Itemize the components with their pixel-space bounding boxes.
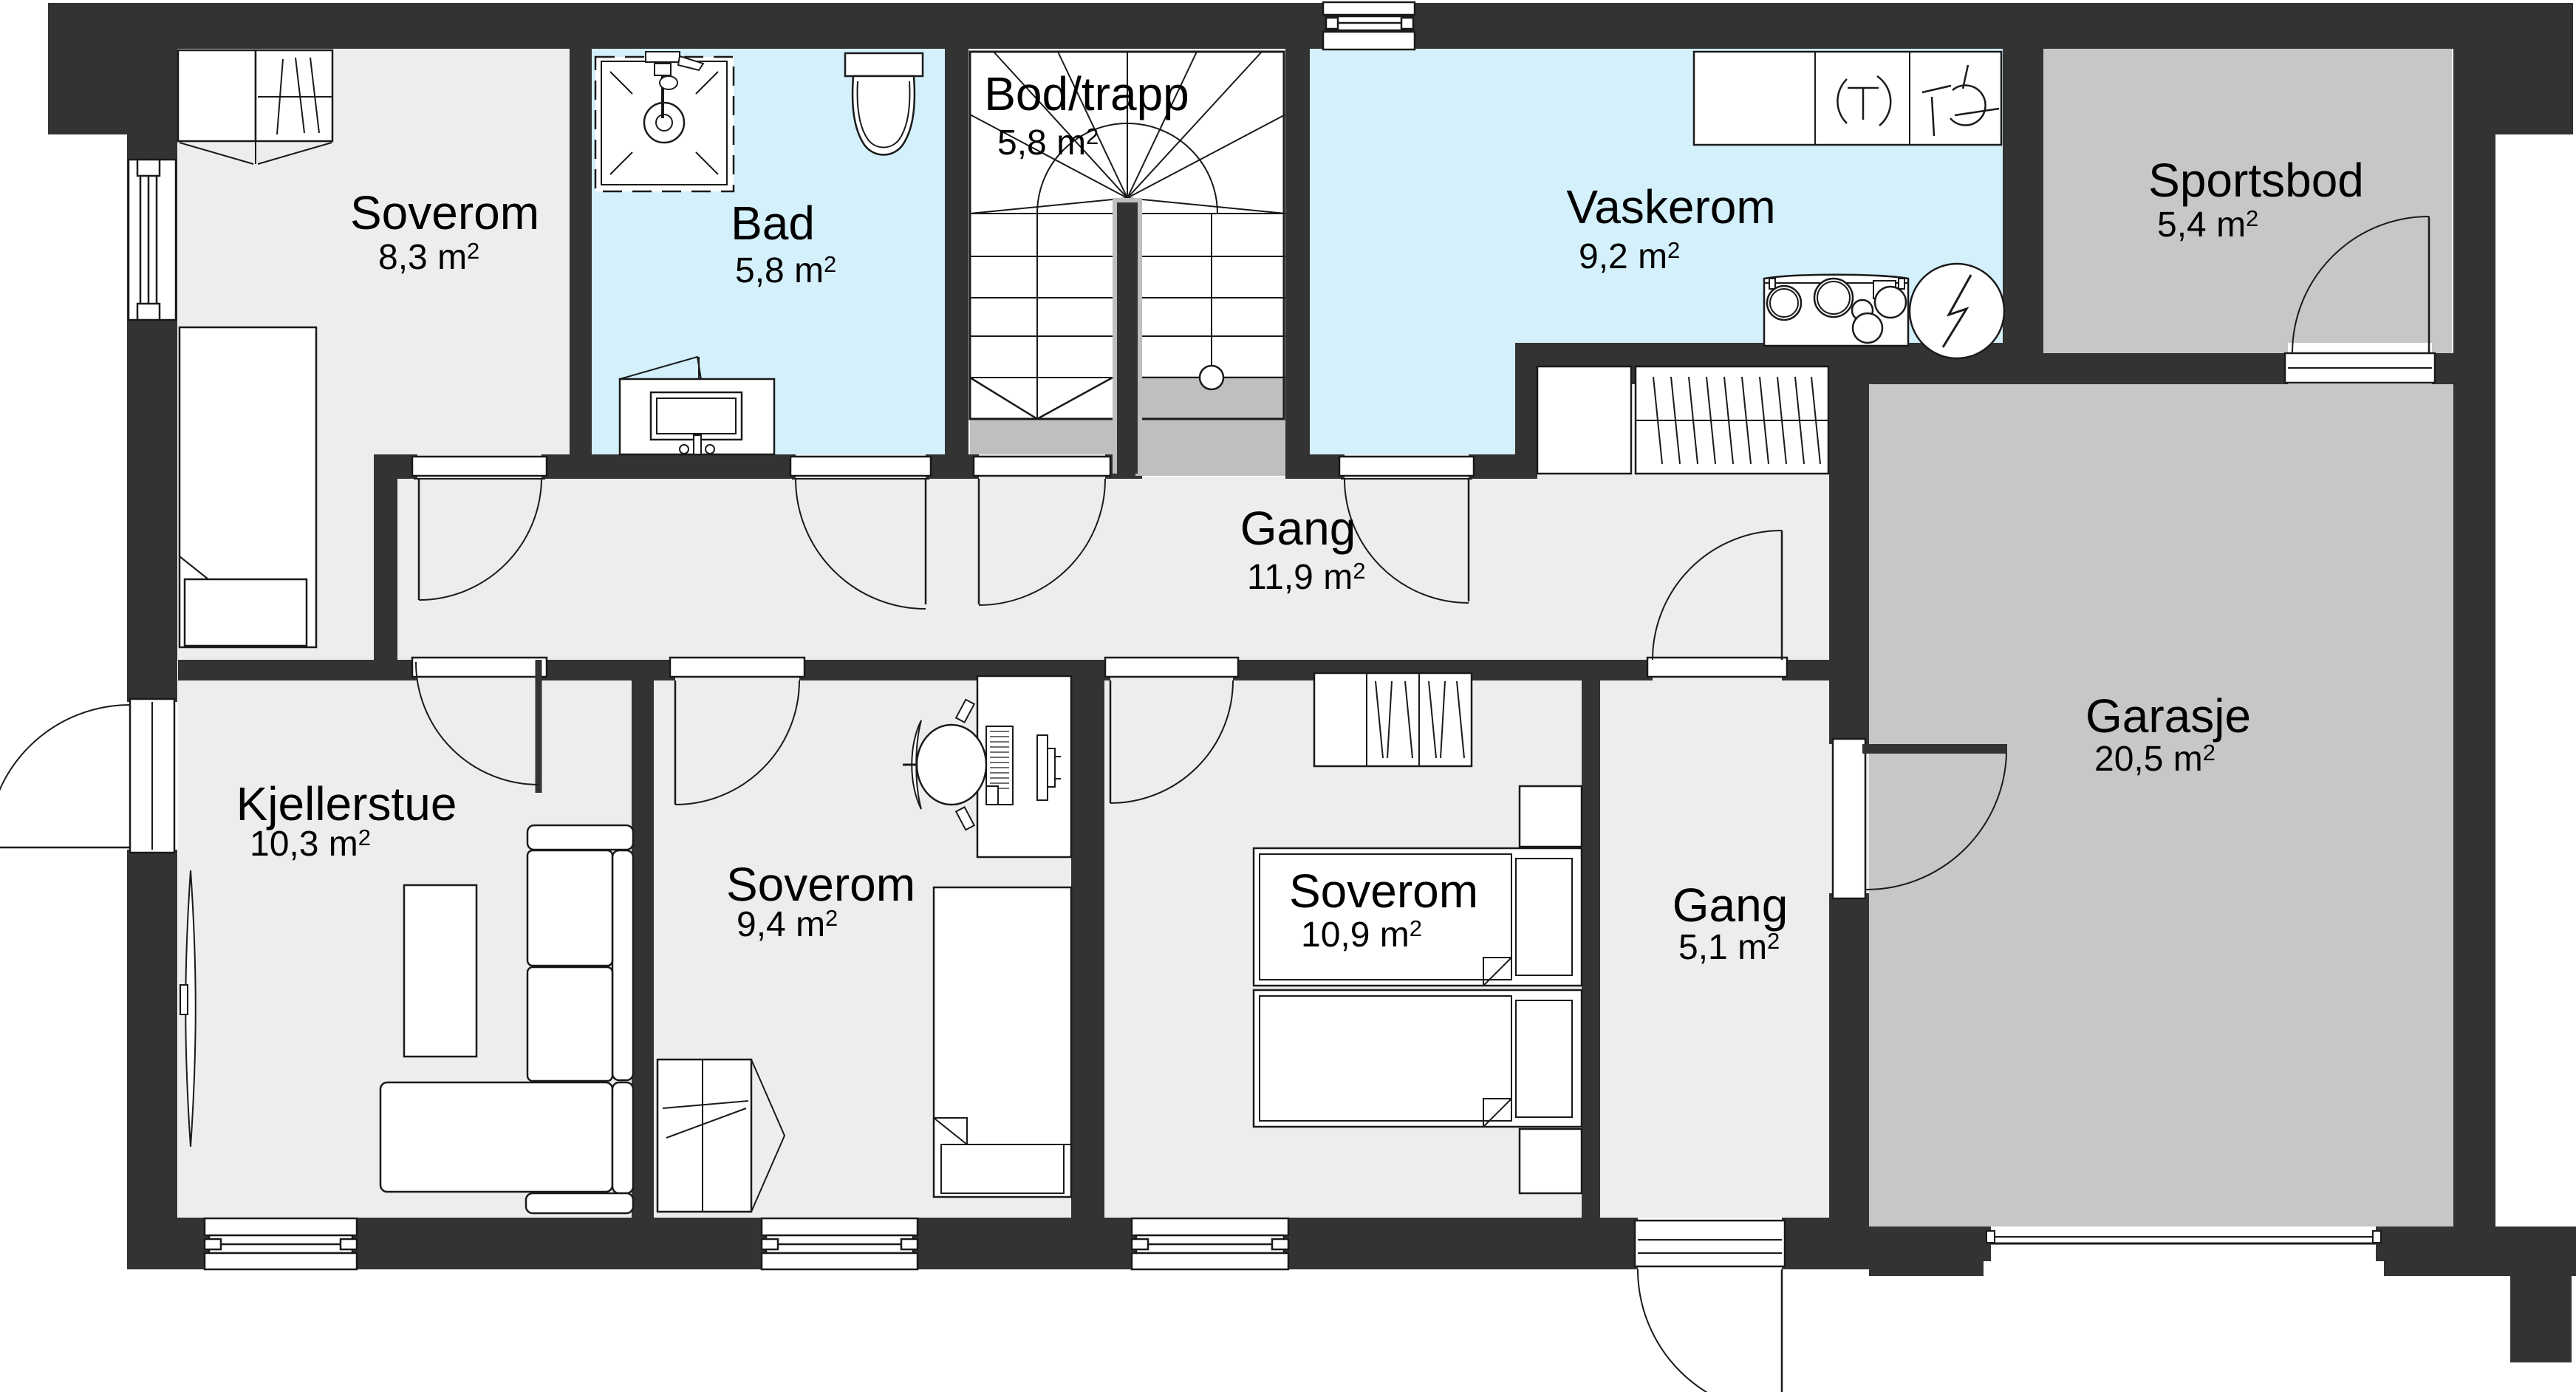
- svg-text:20,5 m2: 20,5 m2: [2094, 740, 2215, 779]
- svg-text:Bod/trapp: Bod/trapp: [984, 67, 1189, 120]
- svg-text:11,9 m2: 11,9 m2: [1247, 558, 1365, 597]
- svg-text:Gang: Gang: [1673, 878, 1788, 932]
- svg-text:5,8 m2: 5,8 m2: [735, 251, 836, 290]
- svg-text:5,8 m2: 5,8 m2: [997, 123, 1099, 163]
- svg-text:10,3 m2: 10,3 m2: [250, 825, 371, 864]
- svg-text:Bad: Bad: [731, 197, 815, 250]
- svg-text:Soverom: Soverom: [1289, 864, 1478, 918]
- svg-text:5,4 m2: 5,4 m2: [2157, 205, 2258, 245]
- svg-text:Vaskerom: Vaskerom: [1566, 180, 1775, 233]
- svg-text:Garasje: Garasje: [2085, 689, 2251, 743]
- svg-text:9,4 m2: 9,4 m2: [737, 905, 838, 944]
- svg-text:9,2 m2: 9,2 m2: [1579, 237, 1680, 276]
- svg-text:Gang: Gang: [1240, 502, 1356, 555]
- svg-text:10,9 m2: 10,9 m2: [1301, 915, 1422, 955]
- svg-text:Kjellerstue: Kjellerstue: [236, 777, 457, 830]
- svg-text:Soverom: Soverom: [726, 858, 915, 911]
- svg-text:Soverom: Soverom: [350, 186, 539, 239]
- svg-text:Sportsbod: Sportsbod: [2148, 154, 2364, 207]
- svg-text:8,3 m2: 8,3 m2: [378, 238, 479, 277]
- svg-text:5,1 m2: 5,1 m2: [1678, 928, 1780, 967]
